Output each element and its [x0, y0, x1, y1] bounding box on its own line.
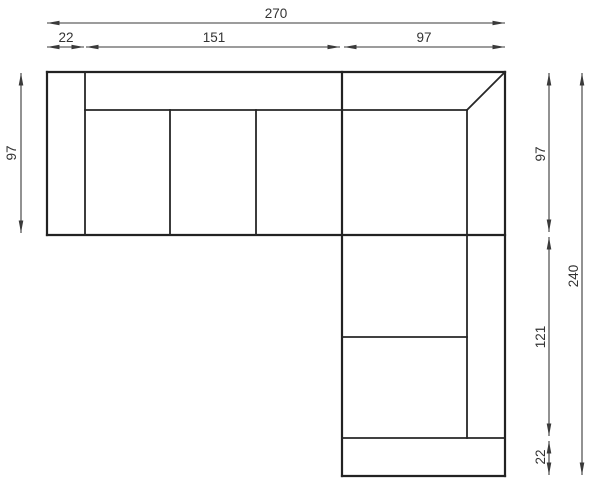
dimensions: 270 22 151 97 97	[4, 6, 582, 475]
dim-label-97-right: 97	[533, 146, 548, 161]
dim-label-240: 240	[566, 265, 581, 288]
dim-top-total: 270	[47, 6, 505, 23]
dim-label-22-top: 22	[58, 30, 73, 45]
dim-top-seats: 151	[86, 30, 340, 47]
dim-right-armrest: 22	[533, 441, 549, 475]
dim-right-chaise: 121	[533, 237, 549, 436]
dim-label-270: 270	[265, 6, 288, 21]
dim-label-22-right: 22	[533, 449, 548, 464]
dim-label-97-left: 97	[4, 145, 19, 160]
dim-top-armrest: 22	[47, 30, 84, 47]
sofa-body	[47, 72, 505, 476]
corner-diagonal	[467, 72, 505, 110]
dim-label-151: 151	[203, 30, 226, 45]
sofa-dimension-diagram: 270 22 151 97 97	[0, 0, 600, 494]
dim-right-total: 240	[566, 73, 582, 475]
dim-label-97-top: 97	[416, 30, 431, 45]
dim-right-upper: 97	[533, 73, 549, 232]
dim-label-121: 121	[533, 326, 548, 349]
dim-top-corner: 97	[344, 30, 505, 47]
diagram-canvas: 270 22 151 97 97	[0, 0, 600, 494]
dim-left-depth: 97	[4, 73, 21, 233]
